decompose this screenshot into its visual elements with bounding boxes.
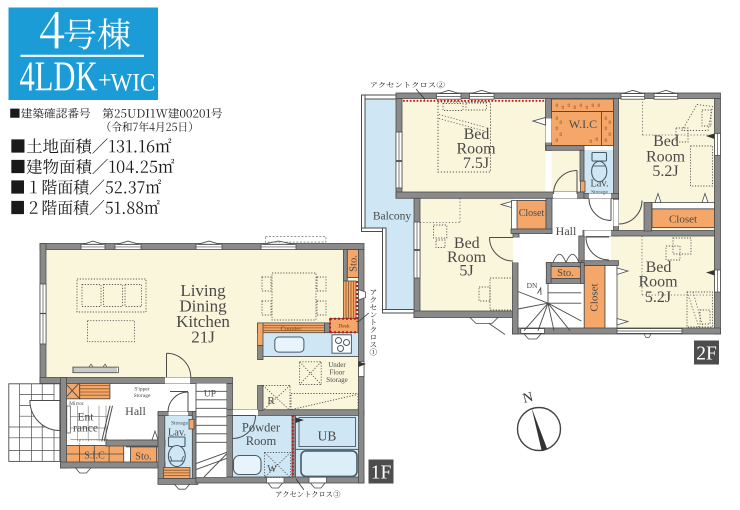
svg-text:UP: UP bbox=[204, 390, 216, 400]
svg-text:Balcony: Balcony bbox=[373, 211, 412, 223]
svg-text:Closet: Closet bbox=[589, 283, 601, 311]
svg-text:7.5J: 7.5J bbox=[463, 155, 489, 172]
svg-text:Storage: Storage bbox=[326, 376, 347, 384]
svg-text:5.2J: 5.2J bbox=[652, 163, 678, 180]
svg-text:4LDK: 4LDK bbox=[20, 55, 98, 101]
svg-text:2F: 2F bbox=[696, 344, 717, 365]
svg-text:+: + bbox=[98, 68, 112, 94]
svg-text:S.I.C: S.I.C bbox=[84, 451, 105, 462]
svg-text:Bed: Bed bbox=[653, 133, 679, 150]
svg-text:Room: Room bbox=[638, 274, 678, 291]
svg-text:5J: 5J bbox=[459, 263, 473, 280]
svg-text:UB: UB bbox=[318, 429, 337, 444]
svg-text:WIC: WIC bbox=[111, 70, 156, 97]
svg-text:Counter: Counter bbox=[281, 326, 303, 333]
svg-text:DN: DN bbox=[527, 281, 538, 290]
svg-text:Hall: Hall bbox=[125, 404, 146, 418]
svg-text:1F: 1F bbox=[371, 463, 392, 484]
svg-text:Sto.: Sto. bbox=[557, 268, 574, 279]
svg-text:S'ipper: S'ipper bbox=[134, 387, 150, 393]
svg-text:rance: rance bbox=[73, 423, 98, 435]
svg-text:R: R bbox=[267, 395, 275, 407]
svg-text:21J: 21J bbox=[191, 328, 215, 347]
svg-text:Mirror: Mirror bbox=[69, 401, 84, 407]
svg-text:Powder: Powder bbox=[242, 421, 281, 435]
svg-text:Desk: Desk bbox=[338, 324, 350, 330]
svg-text:W.I.C: W.I.C bbox=[569, 117, 597, 131]
svg-text:Room: Room bbox=[246, 434, 277, 448]
svg-text:W: W bbox=[267, 464, 277, 475]
svg-text:Hall: Hall bbox=[556, 224, 577, 238]
svg-text:Closet: Closet bbox=[669, 214, 697, 226]
svg-text:Storage: Storage bbox=[171, 421, 188, 427]
svg-text:Storage: Storage bbox=[134, 393, 151, 399]
svg-text:Storage: Storage bbox=[591, 189, 608, 195]
svg-text:Sto.: Sto. bbox=[349, 255, 360, 272]
svg-text:5.2J: 5.2J bbox=[645, 289, 671, 306]
svg-text:Sto.: Sto. bbox=[135, 452, 152, 463]
svg-text:Closet: Closet bbox=[519, 208, 545, 219]
